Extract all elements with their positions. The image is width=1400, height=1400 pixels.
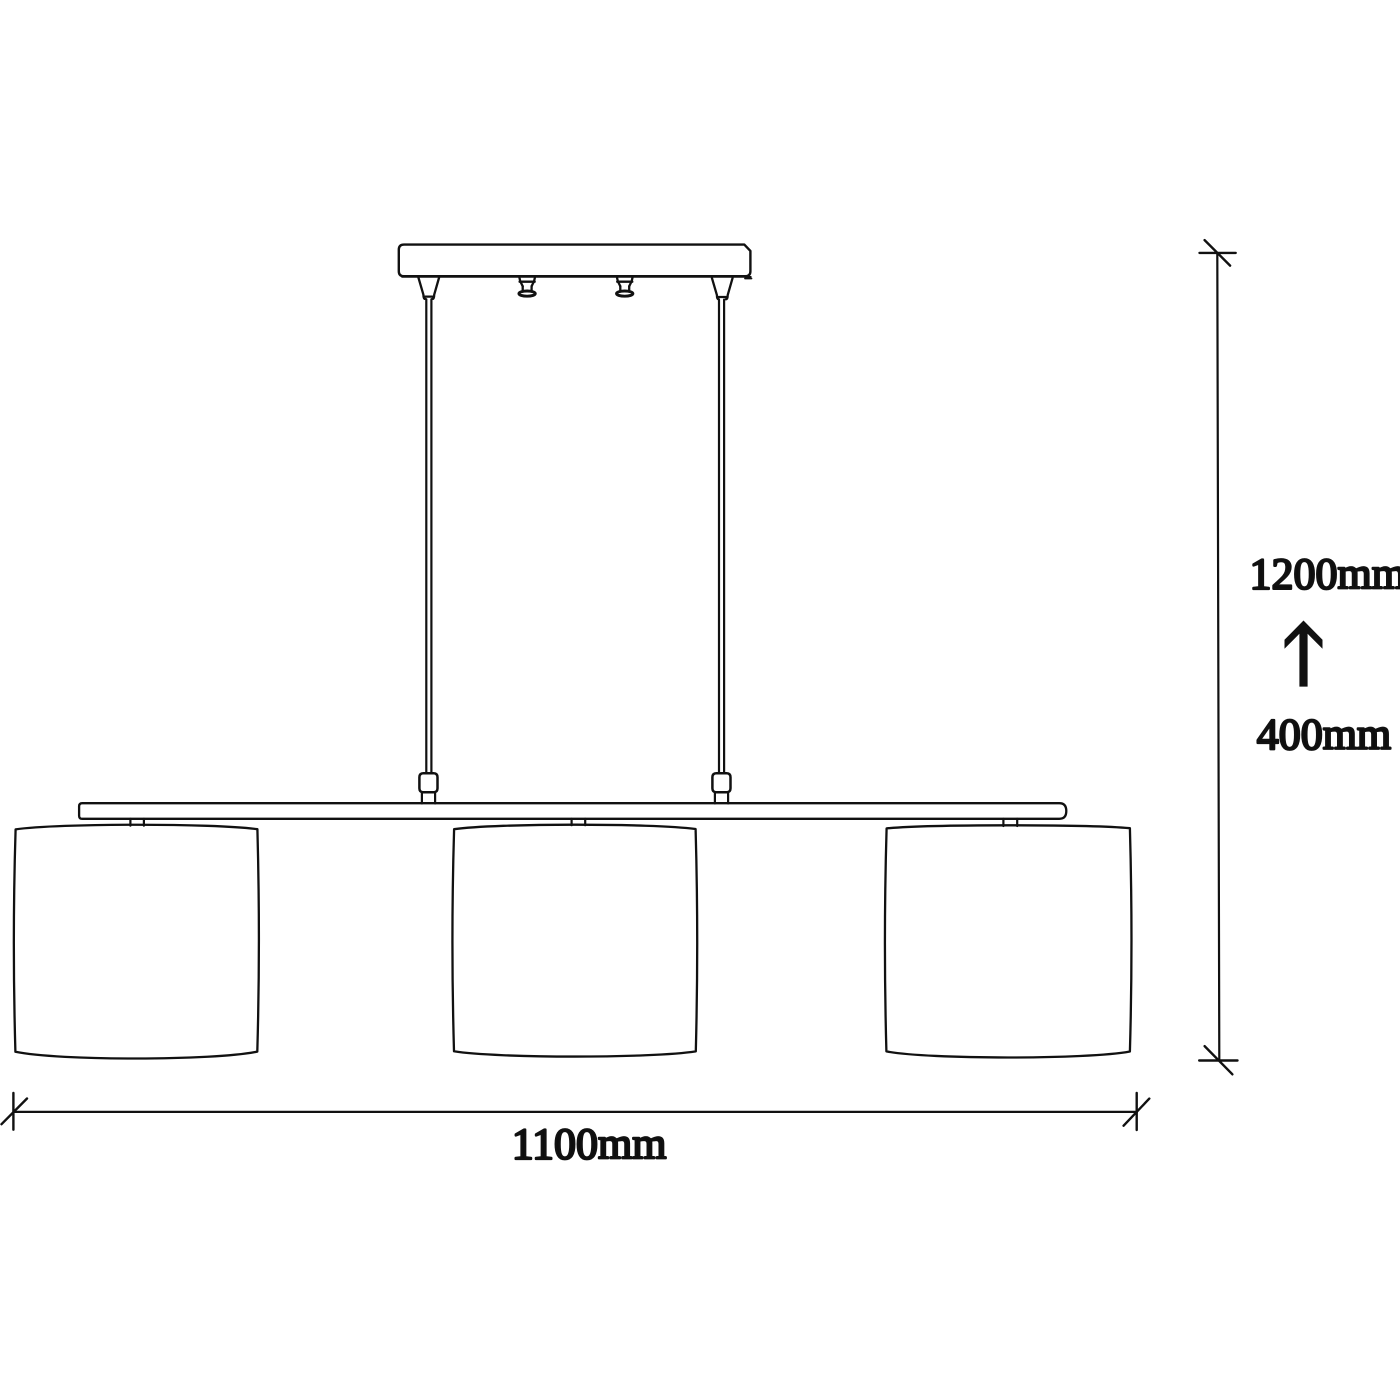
svg-text:400mm: 400mm [1257, 710, 1391, 759]
svg-text:1200mm: 1200mm [1250, 549, 1400, 598]
svg-text:1100mm: 1100mm [512, 1120, 667, 1169]
